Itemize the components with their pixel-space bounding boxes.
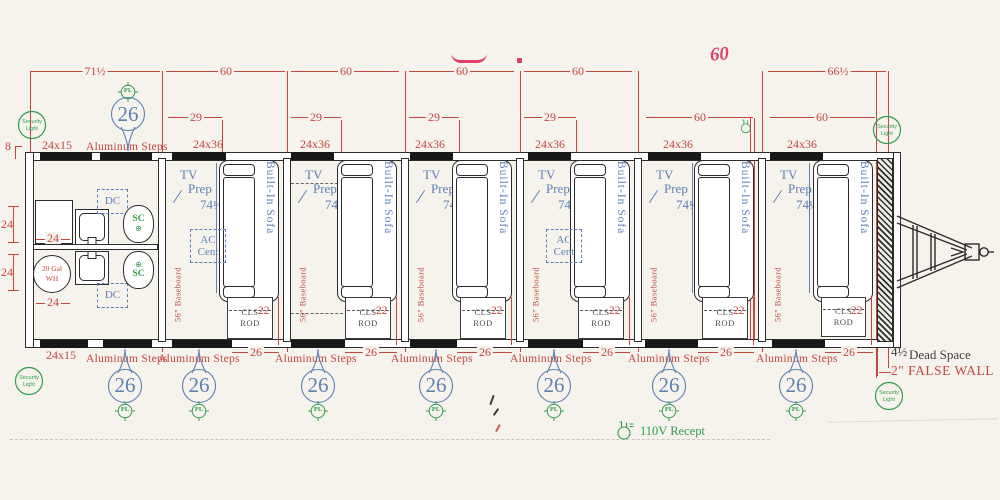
dim-label-window-offset: 29 xyxy=(308,111,324,123)
water-heater-label: 20 Gal xyxy=(42,264,62,274)
false-wall-label: 2" FALSE WALL xyxy=(891,363,994,379)
sofa-seat xyxy=(223,177,255,287)
dim-line xyxy=(13,254,14,290)
sink xyxy=(75,251,109,285)
dim-label-closet: 22 xyxy=(851,306,863,318)
pl-label: PL xyxy=(658,407,680,414)
dead-space-label: Dead Space xyxy=(909,347,971,363)
window-size-label: 24x36 xyxy=(663,138,693,150)
handwritten-dim: 60 xyxy=(709,43,730,67)
built-in-sofa: Built-In Sofa xyxy=(219,160,279,302)
built-in-sofa: Built-In Sofa xyxy=(694,160,754,302)
dim-line xyxy=(629,297,630,345)
toilet: SC ⊕ xyxy=(123,251,154,289)
keynote-number: 26 xyxy=(650,375,688,396)
window-24x36 xyxy=(410,152,453,160)
baseboard-label: 56" Baseboard xyxy=(174,255,185,335)
handwritten-dot-mark xyxy=(517,58,522,63)
keynote-number: 26 xyxy=(109,104,147,125)
window-size-label: 24x36 xyxy=(193,138,223,150)
window-size-label: 24x36 xyxy=(535,138,565,150)
dim-tick xyxy=(8,290,19,291)
ac-label: Cent xyxy=(554,246,575,258)
trailer-hitch xyxy=(893,206,999,298)
dim-label-closet: 22 xyxy=(376,306,388,318)
pl-label: PL xyxy=(785,407,807,414)
security-light-symbol: SecurityLight xyxy=(14,366,44,396)
baseboard-label: 56" Baseboard xyxy=(532,255,543,335)
water-heater: 20 Gal WH xyxy=(33,255,71,293)
tv-prep-label: TVPrep xyxy=(180,168,212,197)
security-light-label: SecurityLight xyxy=(872,124,902,138)
dead-space-fraction: 4½ xyxy=(891,344,907,360)
built-in-sofa: Built-In Sofa xyxy=(337,160,397,302)
sofa-seat xyxy=(698,177,730,287)
sofa-label: Built-In Sofa xyxy=(264,161,276,301)
sofa-armrest xyxy=(223,164,255,176)
dc-label: DC xyxy=(105,195,120,207)
sofa-armrest xyxy=(341,164,373,176)
sofa-label: Built-In Sofa xyxy=(382,161,394,301)
dim-label-door: 26 xyxy=(718,346,734,358)
pen-mark xyxy=(493,408,499,416)
window-24x15 xyxy=(40,340,88,348)
dim-label-closet: 22 xyxy=(258,306,270,318)
dim-label-window-offset: 29 xyxy=(188,111,204,123)
dim-tick xyxy=(8,254,19,255)
dim-line-blue xyxy=(216,163,217,293)
built-in-sofa: Built-In Sofa xyxy=(452,160,512,302)
sink xyxy=(75,209,109,245)
porch-light-symbol: PL xyxy=(307,400,329,422)
dim-line xyxy=(511,297,512,345)
keynote-balloon: 26 xyxy=(106,346,144,404)
sofa-armrest xyxy=(456,164,488,176)
sofa-label: Built-In Sofa xyxy=(858,161,870,301)
porch-light-symbol: PL xyxy=(658,400,680,422)
partition-wall xyxy=(401,158,409,342)
dim-label-closet: 22 xyxy=(609,306,621,318)
sc-label: SC xyxy=(132,270,144,280)
dim-label-unit-5: 60 xyxy=(570,65,586,77)
dim-extension xyxy=(15,146,16,159)
dim-label-unit6-width: 60 xyxy=(692,111,708,123)
baseboard-label: 56" Baseboard xyxy=(650,255,661,335)
scan-artifact xyxy=(10,439,770,440)
toilet: SC ⊕ xyxy=(123,205,154,243)
keynote-number: 26 xyxy=(777,375,815,396)
closet-rod: CLSROD xyxy=(460,297,506,339)
dim-extension xyxy=(877,348,878,376)
dim-tick xyxy=(8,206,19,207)
dim-label-door: 26 xyxy=(363,346,379,358)
closet-rod: CLSROD xyxy=(345,297,391,339)
pl-label: PL xyxy=(114,407,136,414)
closet-rod: CLSROD xyxy=(578,297,624,339)
window-size-label: 24x36 xyxy=(787,138,817,150)
closet-rod: CLSROD xyxy=(227,297,273,339)
pl-label: PL xyxy=(425,407,447,414)
sofa-seat xyxy=(341,177,373,287)
keynote-balloon: 26 xyxy=(109,96,147,154)
keynote-balloon: 26 xyxy=(777,346,815,404)
window-24x36 xyxy=(648,152,701,160)
dc-label: DC xyxy=(105,289,120,301)
tv-prep-label: TVPrep xyxy=(538,168,570,197)
baseboard-label: 56" Baseboard xyxy=(774,255,785,335)
sink-faucet xyxy=(88,237,97,245)
water-heater-label: WH xyxy=(46,274,59,284)
dim-label-offset-8: 8 xyxy=(5,140,11,152)
partition-wall xyxy=(758,158,766,342)
security-light-label: SecurityLight xyxy=(874,390,904,404)
security-light-label: SecurityLight xyxy=(17,119,47,133)
porch-light-symbol: PL xyxy=(543,400,565,422)
window-24x36 xyxy=(528,152,571,160)
legend-recept-label: 110V Recept xyxy=(640,424,705,439)
dim-line-blue xyxy=(692,163,693,293)
partition-wall xyxy=(634,158,642,342)
sofa-label: Built-In Sofa xyxy=(739,161,751,301)
dim-line xyxy=(13,206,14,242)
baseboard-label: 56" Baseboard xyxy=(299,255,310,335)
front-window-label: 24x15 xyxy=(42,139,72,151)
sofa-armrest xyxy=(817,164,849,176)
partition-wall xyxy=(516,158,524,342)
window-24x36 xyxy=(770,152,823,160)
window-24x36 xyxy=(172,152,226,160)
security-light-symbol: SecurityLight xyxy=(17,110,47,140)
receptacle-icon xyxy=(739,118,754,139)
security-light-symbol: SecurityLight xyxy=(872,115,902,145)
security-light-label: SecurityLight xyxy=(14,375,44,389)
keynote-number: 26 xyxy=(299,375,337,396)
partition-wall xyxy=(158,158,166,342)
dim-label-door: 26 xyxy=(841,346,857,358)
keynote-balloon: 26 xyxy=(299,346,337,404)
ac-label: AC xyxy=(200,234,215,246)
pl-label: PL xyxy=(117,88,139,95)
dc-panel: DC xyxy=(97,189,128,214)
porch-light-symbol: PL xyxy=(785,400,807,422)
dim-label-door: 26 xyxy=(248,346,264,358)
sofa-armrest xyxy=(574,164,606,176)
window-size-label: 24x36 xyxy=(300,138,330,150)
tv-prep-label: TVPrep xyxy=(780,168,812,197)
dim-label-window-offset: 29 xyxy=(426,111,442,123)
dim-line-blue xyxy=(809,163,810,293)
pl-label: PL xyxy=(188,407,210,414)
window-24x15 xyxy=(40,152,92,160)
sofa-label: Built-In Sofa xyxy=(615,161,627,301)
false-wall-hatch xyxy=(877,158,893,342)
dim-label-closet: 22 xyxy=(733,306,745,318)
dim-label-bath: 24 xyxy=(45,296,61,308)
pen-mark xyxy=(489,395,494,405)
baseboard-label: 56" Baseboard xyxy=(417,255,428,335)
front-window-label: 24x15 xyxy=(46,349,76,361)
ac-unit: AC Cent xyxy=(190,229,226,263)
pl-label: PL xyxy=(307,407,329,414)
keynote-number: 26 xyxy=(106,375,144,396)
keynote-balloon: 26 xyxy=(417,346,455,404)
sofa-armrest xyxy=(698,164,730,176)
dim-extension xyxy=(459,120,460,152)
receptacle-legend-icon xyxy=(615,420,635,445)
sofa-label: Built-In Sofa xyxy=(497,161,509,301)
exterior-wall-bottom xyxy=(25,339,897,348)
keynote-number: 26 xyxy=(180,375,218,396)
ac-label: Cent xyxy=(198,246,219,258)
dim-extension xyxy=(879,372,891,373)
dim-line xyxy=(871,297,872,345)
dim-extension xyxy=(15,146,22,147)
exterior-wall-front xyxy=(25,152,34,348)
dim-label-unit-7: 66½ xyxy=(826,65,851,77)
sc-label: SC xyxy=(132,215,144,225)
window-24x36 xyxy=(291,152,334,160)
window-size-label: 24x36 xyxy=(415,138,445,150)
dim-tick xyxy=(8,242,19,243)
sc-symbol-icon: ⊕ xyxy=(135,261,142,269)
porch-light-symbol: PL xyxy=(425,400,447,422)
dim-label-window-offset: 29 xyxy=(542,111,558,123)
dim-line xyxy=(278,297,279,345)
dim-label-unit7-width: 60 xyxy=(814,111,830,123)
dim-extension xyxy=(341,120,342,152)
dim-label-door: 26 xyxy=(477,346,493,358)
partition-wall xyxy=(283,158,291,342)
keynote-balloon: 26 xyxy=(650,346,688,404)
pen-mark xyxy=(495,424,500,432)
ac-unit: AC Cent xyxy=(546,229,582,263)
keynote-number: 26 xyxy=(535,375,573,396)
dim-line xyxy=(753,297,754,345)
handwritten-check-mark xyxy=(451,53,487,63)
dim-label-unit-4: 60 xyxy=(454,65,470,77)
dim-extension xyxy=(888,348,889,368)
dc-panel: DC xyxy=(97,283,128,308)
porch-light-symbol: PL xyxy=(188,400,210,422)
ac-label: AC xyxy=(556,234,571,246)
pl-label: PL xyxy=(543,407,565,414)
tv-prep-label: TVPrep xyxy=(656,168,688,197)
dim-label-bath: 24 xyxy=(45,232,61,244)
sofa-seat xyxy=(817,177,849,287)
built-in-sofa: Built-In Sofa xyxy=(813,160,873,302)
keynote-balloon: 26 xyxy=(180,346,218,404)
scan-artifact xyxy=(828,418,998,423)
dim-label-unit-2: 60 xyxy=(218,65,234,77)
tv-prep-label: TVPrep xyxy=(423,168,455,197)
dim-label-door: 26 xyxy=(599,346,615,358)
dim-label-closet: 22 xyxy=(491,306,503,318)
dim-label-bath: 24 xyxy=(1,218,13,230)
keynote-number: 26 xyxy=(417,375,455,396)
dim-extension xyxy=(576,120,577,152)
porch-light-symbol: PL xyxy=(114,400,136,422)
sc-symbol-icon: ⊕ xyxy=(135,225,142,233)
closet-rod: CLSROD xyxy=(702,297,748,339)
dim-label-overall-1: 71½ xyxy=(83,65,108,77)
floor-plan-drawing: 60 71½ 60 60 60 60 66½ 29 29 29 29 60 60… xyxy=(0,0,1000,500)
dim-line xyxy=(396,297,397,345)
dim-label-bath: 24 xyxy=(1,266,13,278)
sofa-seat xyxy=(456,177,488,287)
keynote-balloon: 26 xyxy=(535,346,573,404)
dim-label-unit-3: 60 xyxy=(338,65,354,77)
sink-faucet xyxy=(88,251,97,259)
porch-light-symbol: PL xyxy=(117,81,139,103)
security-light-symbol: SecurityLight xyxy=(874,381,904,411)
